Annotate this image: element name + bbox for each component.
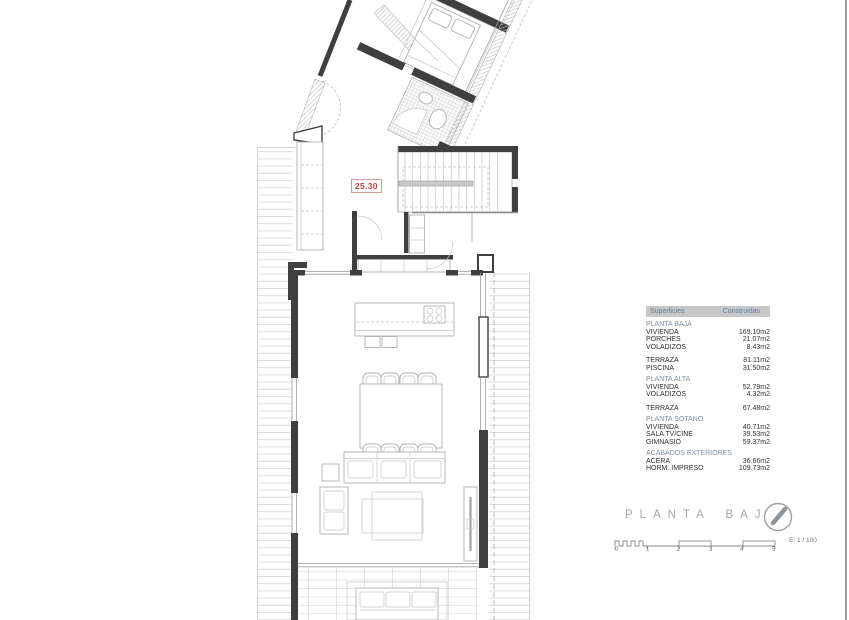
scale-label-2: 2 [677,547,680,553]
table-row: TERRAZA81.11m2 [646,357,770,365]
outdoor-sofa [347,582,447,620]
dimension-label: 25.30 [351,179,382,193]
staircase [398,146,518,213]
table-row: VIVIENDA40.71m2 [646,424,770,432]
corridor [352,211,493,272]
table-row: SALA TV/CINE39.53m2 [646,431,770,439]
table-section: PLANTA BAJA [646,321,770,329]
table-header: Superficies Construidas [646,306,770,317]
page-title: PLANTA BAJA [625,509,782,521]
scale-bar: 0 1 2 3 4 5 E: 1 / 100 [613,534,849,560]
compass-icon [760,500,796,536]
kitchen-island [355,303,454,348]
table-section: PLANTA SOTANO [646,416,770,424]
table-row: GIMNASIO59.37m2 [646,439,770,447]
table-row: VIVIENDA169.10m2 [646,329,770,337]
scale-ratio: E: 1 / 100 [789,537,817,544]
table-row: PISCINA31.50m2 [646,365,770,373]
scale-label-1: 1 [646,547,649,553]
table-row: VIVIENDA52.79m2 [646,384,770,392]
handrail [399,181,473,186]
table-row: ACERA36.66m2 [646,458,770,466]
table-header-superficies: Superficies [650,307,685,316]
dining-table [360,384,442,448]
dining-set [360,373,442,459]
table-row: PORCHES21.07m2 [646,336,770,344]
areas-table: Superficies Construidas PLANTA BAJA VIVI… [646,306,770,473]
cooktop [424,306,445,323]
scale-label-3: 3 [709,547,712,553]
table-row: HORM. IMPRESO109.73m2 [646,465,770,473]
living-set [320,452,477,561]
scale-label-4: 4 [740,547,743,553]
column [478,255,493,272]
table-section: ACABADOS EXTERIORES [646,450,770,458]
drawing-sheet: 25.30 Superficies Construidas PLANTA BAJ… [0,0,849,620]
table-row: VOLADIZOS4.32m2 [646,391,770,399]
coffee-table [362,499,423,533]
scale-label-5: 5 [772,547,775,553]
table-row: VOLADIZOS8.43m2 [646,344,770,352]
table-header-construidas: Construidas [723,307,766,316]
scale-label-0: 0 [615,547,618,553]
table-section: PLANTA ALTA [646,376,770,384]
page-edge-line [845,0,847,620]
table-row: TERRAZA67.48m2 [646,405,770,413]
